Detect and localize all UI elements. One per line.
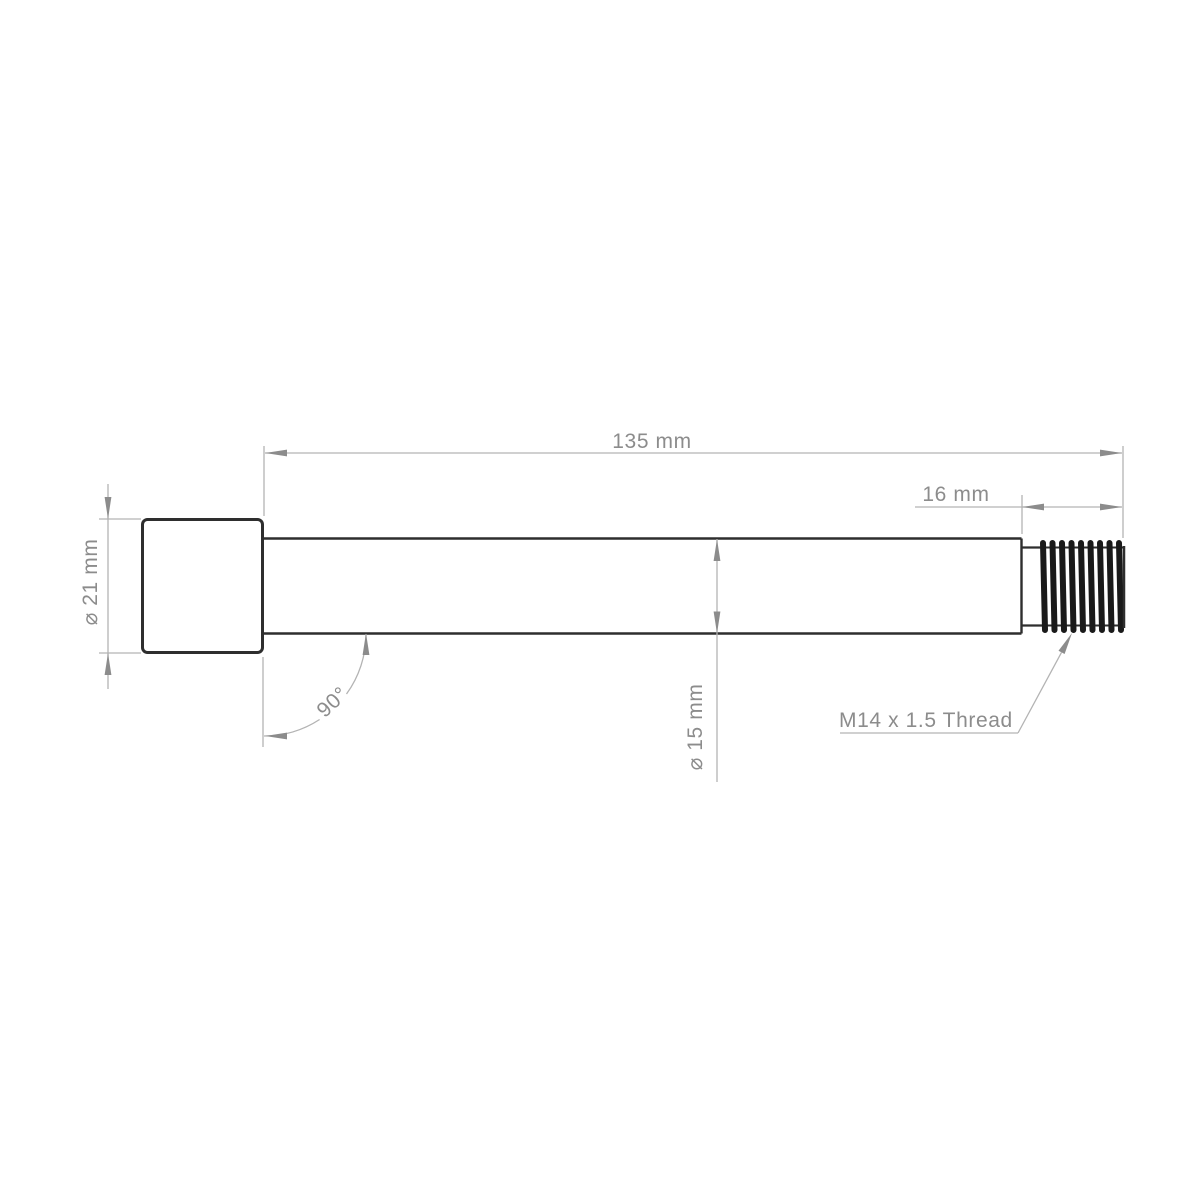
- dimension-head-diameter: ⌀ 21 mm: [79, 484, 141, 689]
- dim-15-arrow-top: [714, 539, 721, 561]
- thread-spec-callout: M14 x 1.5 Thread: [839, 633, 1072, 733]
- thread-spec-label: M14 x 1.5 Thread: [839, 709, 1013, 732]
- thread-ridge: [1081, 543, 1083, 630]
- angle-arc-upper: [347, 634, 367, 694]
- thread-ridge: [1062, 543, 1064, 630]
- thread-ridge: [1043, 543, 1045, 630]
- thread-ridge: [1100, 543, 1102, 630]
- thread-ridge: [1053, 543, 1055, 630]
- head-diameter-label: ⌀ 21 mm: [79, 539, 102, 626]
- dim-16-arrow-left: [1022, 504, 1044, 511]
- dim-135-arrow-right: [1100, 450, 1122, 457]
- leader-arrow: [1059, 633, 1073, 654]
- axle-head-outline: [143, 520, 263, 653]
- thread-length-label: 16 mm: [922, 483, 989, 506]
- thread-ridge: [1072, 543, 1074, 630]
- angle-arc-lower: [264, 720, 320, 737]
- technical-drawing: 135 mm 16 mm ⌀ 21 mm ⌀ 15 mm: [0, 0, 1200, 1200]
- dimension-head-angle: 90°: [263, 633, 369, 747]
- dim-15-arrow-bottom: [714, 612, 721, 634]
- axle-part: [143, 520, 1125, 653]
- dim-16-arrow-right: [1100, 504, 1122, 511]
- dim-21-arrow-bottom: [105, 653, 112, 675]
- thread-ridge: [1091, 543, 1093, 630]
- dim-135-arrow-left: [265, 450, 287, 457]
- shaft-diameter-label: ⌀ 15 mm: [684, 684, 707, 771]
- total-length-label: 135 mm: [612, 430, 691, 453]
- dimension-total-length: 135 mm: [264, 430, 1123, 538]
- leader-line: [1018, 652, 1062, 733]
- axle-diagram: 135 mm 16 mm ⌀ 21 mm ⌀ 15 mm: [0, 0, 1200, 1200]
- thread-ridges: [1043, 543, 1121, 630]
- dim-21-arrow-top: [105, 497, 112, 519]
- angle-arrow-top: [363, 633, 370, 655]
- angle-arrow-bottom: [265, 733, 287, 740]
- thread-ridge: [1119, 543, 1121, 630]
- dimension-thread-length: 16 mm: [915, 483, 1122, 534]
- head-angle-label: 90°: [312, 682, 352, 722]
- dimension-shaft-diameter: ⌀ 15 mm: [684, 539, 720, 782]
- thread-ridge: [1110, 543, 1112, 630]
